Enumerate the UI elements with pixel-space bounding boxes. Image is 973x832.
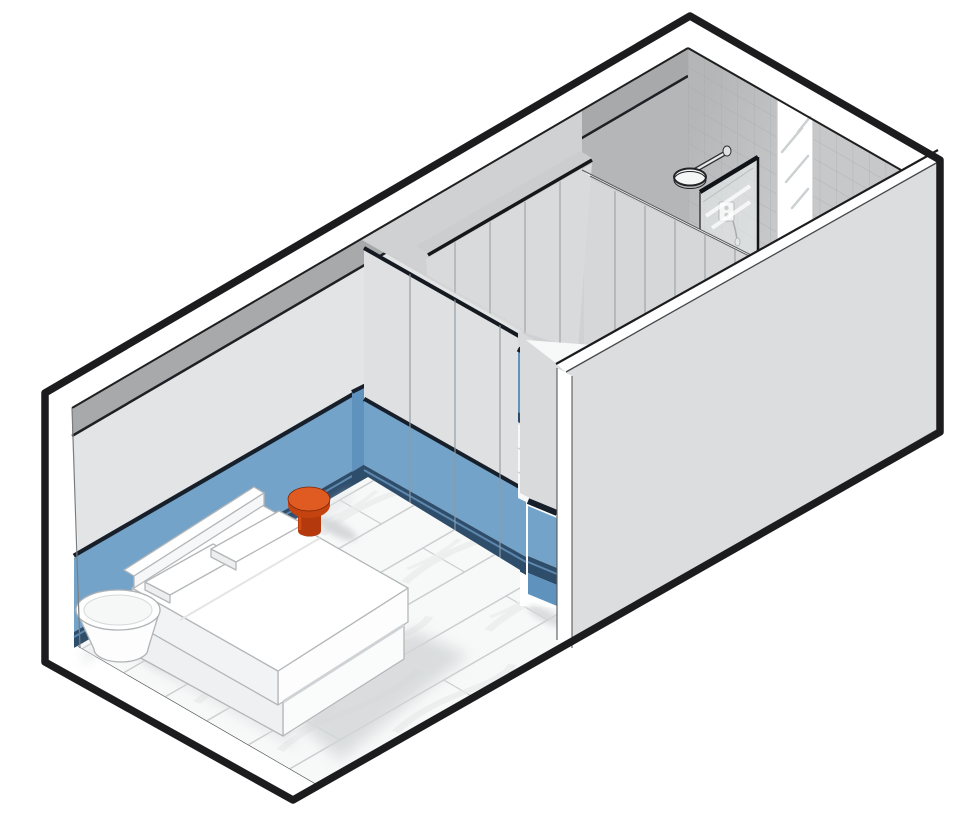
axonometric-illustration xyxy=(0,0,973,832)
se-wall-cut-edge xyxy=(557,368,572,648)
axonometric-cutaway-scene xyxy=(0,0,973,832)
shower-arm-flange xyxy=(723,146,731,156)
side-table-stem-base xyxy=(298,526,321,537)
stool-rim xyxy=(84,595,152,625)
side-table-cap-top xyxy=(288,487,330,511)
frosted-window-strip xyxy=(777,99,813,241)
